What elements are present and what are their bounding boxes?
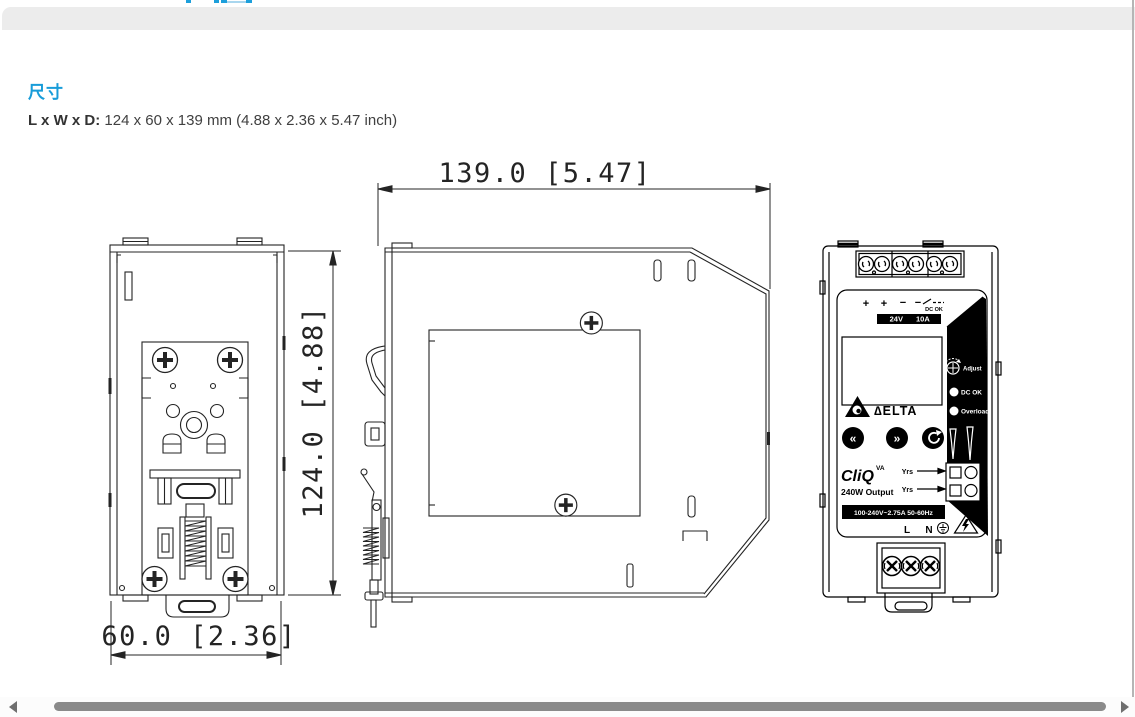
vent-slot [125, 272, 132, 300]
input-terminal-block [877, 543, 945, 612]
height-dimension: 124.0 [4.88] [298, 305, 329, 518]
rating-voltage: 24V [890, 315, 903, 324]
led-dc-ok-label: DC OK [961, 390, 982, 397]
brand-text: ∆ELTA [874, 404, 917, 418]
model-text: CliQ [841, 468, 874, 485]
earth-icon [938, 523, 949, 534]
technical-drawings: 139.0 [5.47] 124.0 [4.88] 60.0 [2.36] [0, 0, 1135, 717]
bracket-screw [142, 567, 167, 592]
bracket-screw [153, 348, 178, 373]
delta-logo [845, 396, 870, 417]
label-area [429, 330, 640, 516]
dc-ok-switch-icon [923, 299, 944, 304]
display-window [842, 337, 942, 405]
side-view-drawing [361, 243, 770, 627]
width-dimension: 60.0 [2.36] [101, 621, 296, 652]
product-front-drawing [820, 241, 1001, 612]
led-overload-label: Overload [961, 409, 989, 416]
neutral-label: N [925, 525, 932, 536]
adjust-label: Adjust [963, 367, 982, 373]
dc-ok-switch-label: DC OK [925, 307, 943, 313]
horizontal-scrollbar[interactable] [0, 697, 1135, 717]
prev-glyph: « [850, 432, 857, 446]
yrs-arrows [917, 469, 945, 492]
scroll-left-arrow[interactable] [9, 701, 17, 713]
output-text: 240W Output [841, 487, 894, 497]
bracket-screw [218, 348, 243, 373]
vent-slot [688, 496, 695, 517]
line-label: L [904, 525, 910, 536]
polarity-plus: + [881, 298, 887, 310]
scrollbar-thumb[interactable] [54, 702, 1106, 711]
case-screw [580, 312, 602, 334]
case-screw [555, 494, 577, 516]
rating-bar [877, 314, 941, 324]
polarity-minus: − [915, 297, 921, 309]
model-sup: VA [876, 465, 885, 472]
vent-slot [688, 260, 695, 281]
sense-terminal-block [946, 463, 980, 501]
led-overload [950, 407, 959, 416]
polarity-plus: + [863, 298, 869, 310]
front-view-drawing [109, 238, 286, 617]
depth-dimension: 139.0 [5.47] [438, 158, 651, 189]
bracket-screw [223, 567, 248, 592]
led-dc-ok [950, 388, 959, 397]
rating-current: 10A [916, 315, 930, 324]
yrs-label-1: Yrs [902, 469, 913, 476]
scroll-right-arrow[interactable] [1121, 701, 1129, 713]
reset-button-icon [922, 427, 944, 449]
vent-slot [654, 260, 661, 281]
input-rating-text: 100-240V~2.75A 50-60Hz [854, 510, 934, 517]
polarity-minus: − [900, 297, 906, 309]
yrs-label-2: Yrs [902, 487, 913, 494]
next-glyph: » [894, 432, 901, 446]
product-page: 尺寸 L x W x D: 124 x 60 x 139 mm (4.88 x … [0, 0, 1135, 717]
